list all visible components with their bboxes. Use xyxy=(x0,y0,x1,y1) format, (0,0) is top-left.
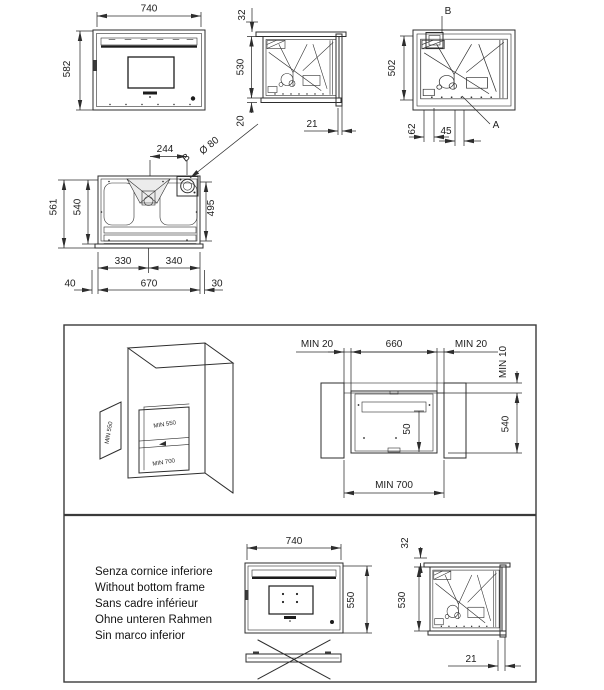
dim-45: 45 xyxy=(440,126,452,137)
iso-top-label: MIN 550 xyxy=(153,420,177,430)
iso-view: MIN 550 MIN 550 MIN 700 xyxy=(100,343,233,493)
wall-right xyxy=(444,383,466,458)
dim-540: 540 xyxy=(73,198,84,215)
dim-40: 40 xyxy=(64,279,76,290)
dim-62: 62 xyxy=(407,123,418,135)
glass-dots xyxy=(282,593,298,603)
installation-section: MIN 550 MIN 550 MIN 700 xyxy=(64,325,536,682)
callout-b-label: B xyxy=(445,6,452,17)
note-german: Ohne unteren Rahmen xyxy=(95,614,212,626)
dim-flue-diameter: Ø 80 xyxy=(198,135,222,157)
iso-bottom-label: MIN 700 xyxy=(152,458,176,468)
bottom-ticks xyxy=(109,104,190,105)
note-spanish: Sin marco inferior xyxy=(95,630,185,642)
note-french: Sans cadre inférieur xyxy=(95,598,198,610)
callout-a-label: A xyxy=(493,120,500,131)
insert-grille xyxy=(362,402,426,412)
dim-50: 50 xyxy=(402,423,413,435)
flue-collar xyxy=(177,177,198,197)
plan-grille-1 xyxy=(104,227,196,233)
dim-30: 30 xyxy=(211,279,223,290)
dim-side-top: 32 xyxy=(237,9,248,21)
dim-nf-height: 550 xyxy=(346,591,357,608)
dim-min10: MIN 10 xyxy=(498,345,509,378)
removed-bottom-frame xyxy=(246,640,341,679)
glass-window xyxy=(128,57,174,88)
door-handle xyxy=(143,92,157,95)
insert-front xyxy=(351,391,437,453)
nf-front-frame xyxy=(245,563,343,633)
insert-handle xyxy=(388,448,400,452)
dim-244: 244 xyxy=(157,144,174,155)
plan-callout-b: B xyxy=(180,151,192,164)
dim-min700: MIN 700 xyxy=(375,480,413,491)
insert-dots xyxy=(358,404,431,439)
nf-side-body xyxy=(430,567,502,631)
dim-nf-width: 740 xyxy=(286,536,303,547)
dim-side-bottom: 20 xyxy=(236,115,247,127)
air-knob xyxy=(191,96,195,100)
technical-drawing: 740 582 32 530 20 21 xyxy=(0,0,604,690)
front-top-grille xyxy=(101,38,197,45)
nf-glass-window xyxy=(269,586,313,614)
plan-grille-2 xyxy=(104,235,196,241)
hinge xyxy=(94,60,98,71)
nf-handle xyxy=(284,616,296,619)
dim-660: 660 xyxy=(386,339,403,350)
language-notes: Senza cornice inferiore Without bottom f… xyxy=(95,566,213,642)
noframe-front-view: 740 550 xyxy=(245,536,372,679)
dim-nf-side-height: 530 xyxy=(397,591,408,608)
pellet-hopper xyxy=(127,179,170,206)
depth-arrow-icon xyxy=(159,441,166,446)
dim-nf-offset: 21 xyxy=(465,654,477,665)
front-view: 740 582 xyxy=(62,4,205,111)
note-english: Without bottom frame xyxy=(95,582,205,594)
niche-view: MIN 20 660 MIN 20 MIN 10 540 50 MIN 700 xyxy=(296,339,522,498)
dim-495: 495 xyxy=(206,199,217,216)
installation-section-border xyxy=(64,325,536,682)
left-duct xyxy=(104,183,134,225)
dim-side2-height: 502 xyxy=(387,59,398,76)
plan-base xyxy=(95,244,203,248)
right-duct xyxy=(160,183,197,225)
top-plate xyxy=(256,32,346,37)
plan-view: 244 B Ø 80 561 540 495 330 340 40 670 30 xyxy=(49,124,259,294)
dim-front-height: 582 xyxy=(62,60,73,77)
bottom-plate xyxy=(261,98,341,103)
dim-min20-left: MIN 20 xyxy=(301,339,334,350)
dim-nf-top: 32 xyxy=(400,537,411,549)
side-section-view: 32 530 20 21 xyxy=(236,8,357,135)
dim-front-width: 740 xyxy=(141,4,158,15)
side-body xyxy=(263,37,339,99)
wall-left xyxy=(321,383,344,458)
side-callout-view: B A 502 62 45 xyxy=(387,6,515,146)
iso-panel-label: MIN 550 xyxy=(105,420,115,444)
dim-670: 670 xyxy=(141,279,158,290)
front-frame xyxy=(93,30,205,110)
dim-niche-540: 540 xyxy=(501,415,512,432)
dim-330: 330 xyxy=(115,256,132,267)
dim-min20-right: MIN 20 xyxy=(455,339,488,350)
dim-340: 340 xyxy=(166,256,183,267)
noframe-side-view: 32 530 21 xyxy=(397,537,521,671)
iso-top-face xyxy=(128,343,233,368)
note-italian: Senza cornice inferiore xyxy=(95,566,213,578)
dim-side-offset: 21 xyxy=(306,119,318,130)
dim-561: 561 xyxy=(49,198,60,215)
dim-side-height: 530 xyxy=(236,58,247,75)
